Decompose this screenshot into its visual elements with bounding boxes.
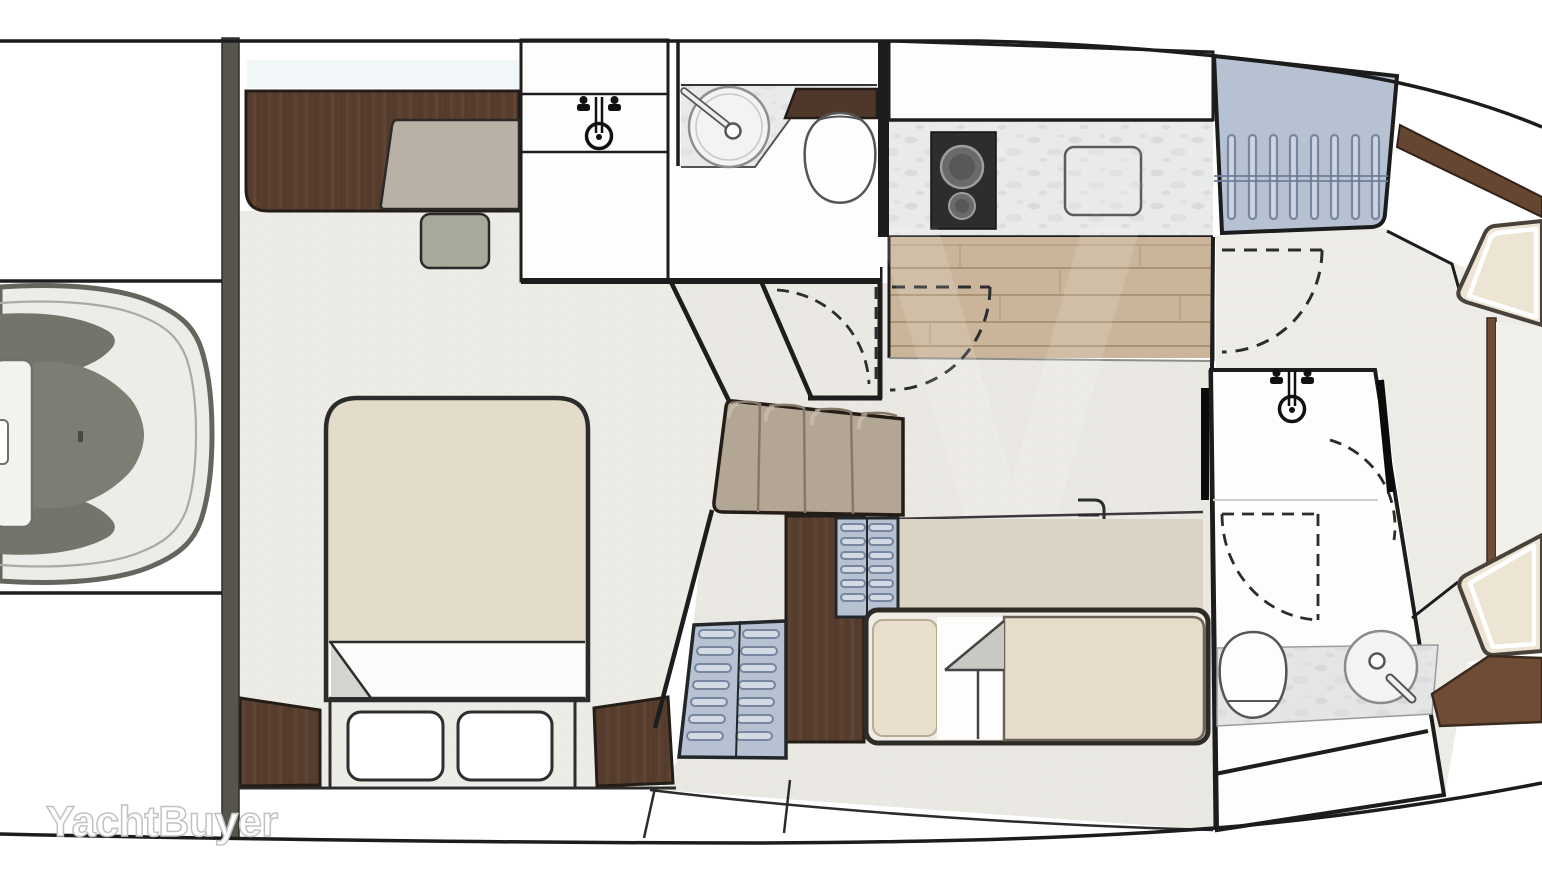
svg-text:YachtBuyer: YachtBuyer (46, 798, 278, 846)
